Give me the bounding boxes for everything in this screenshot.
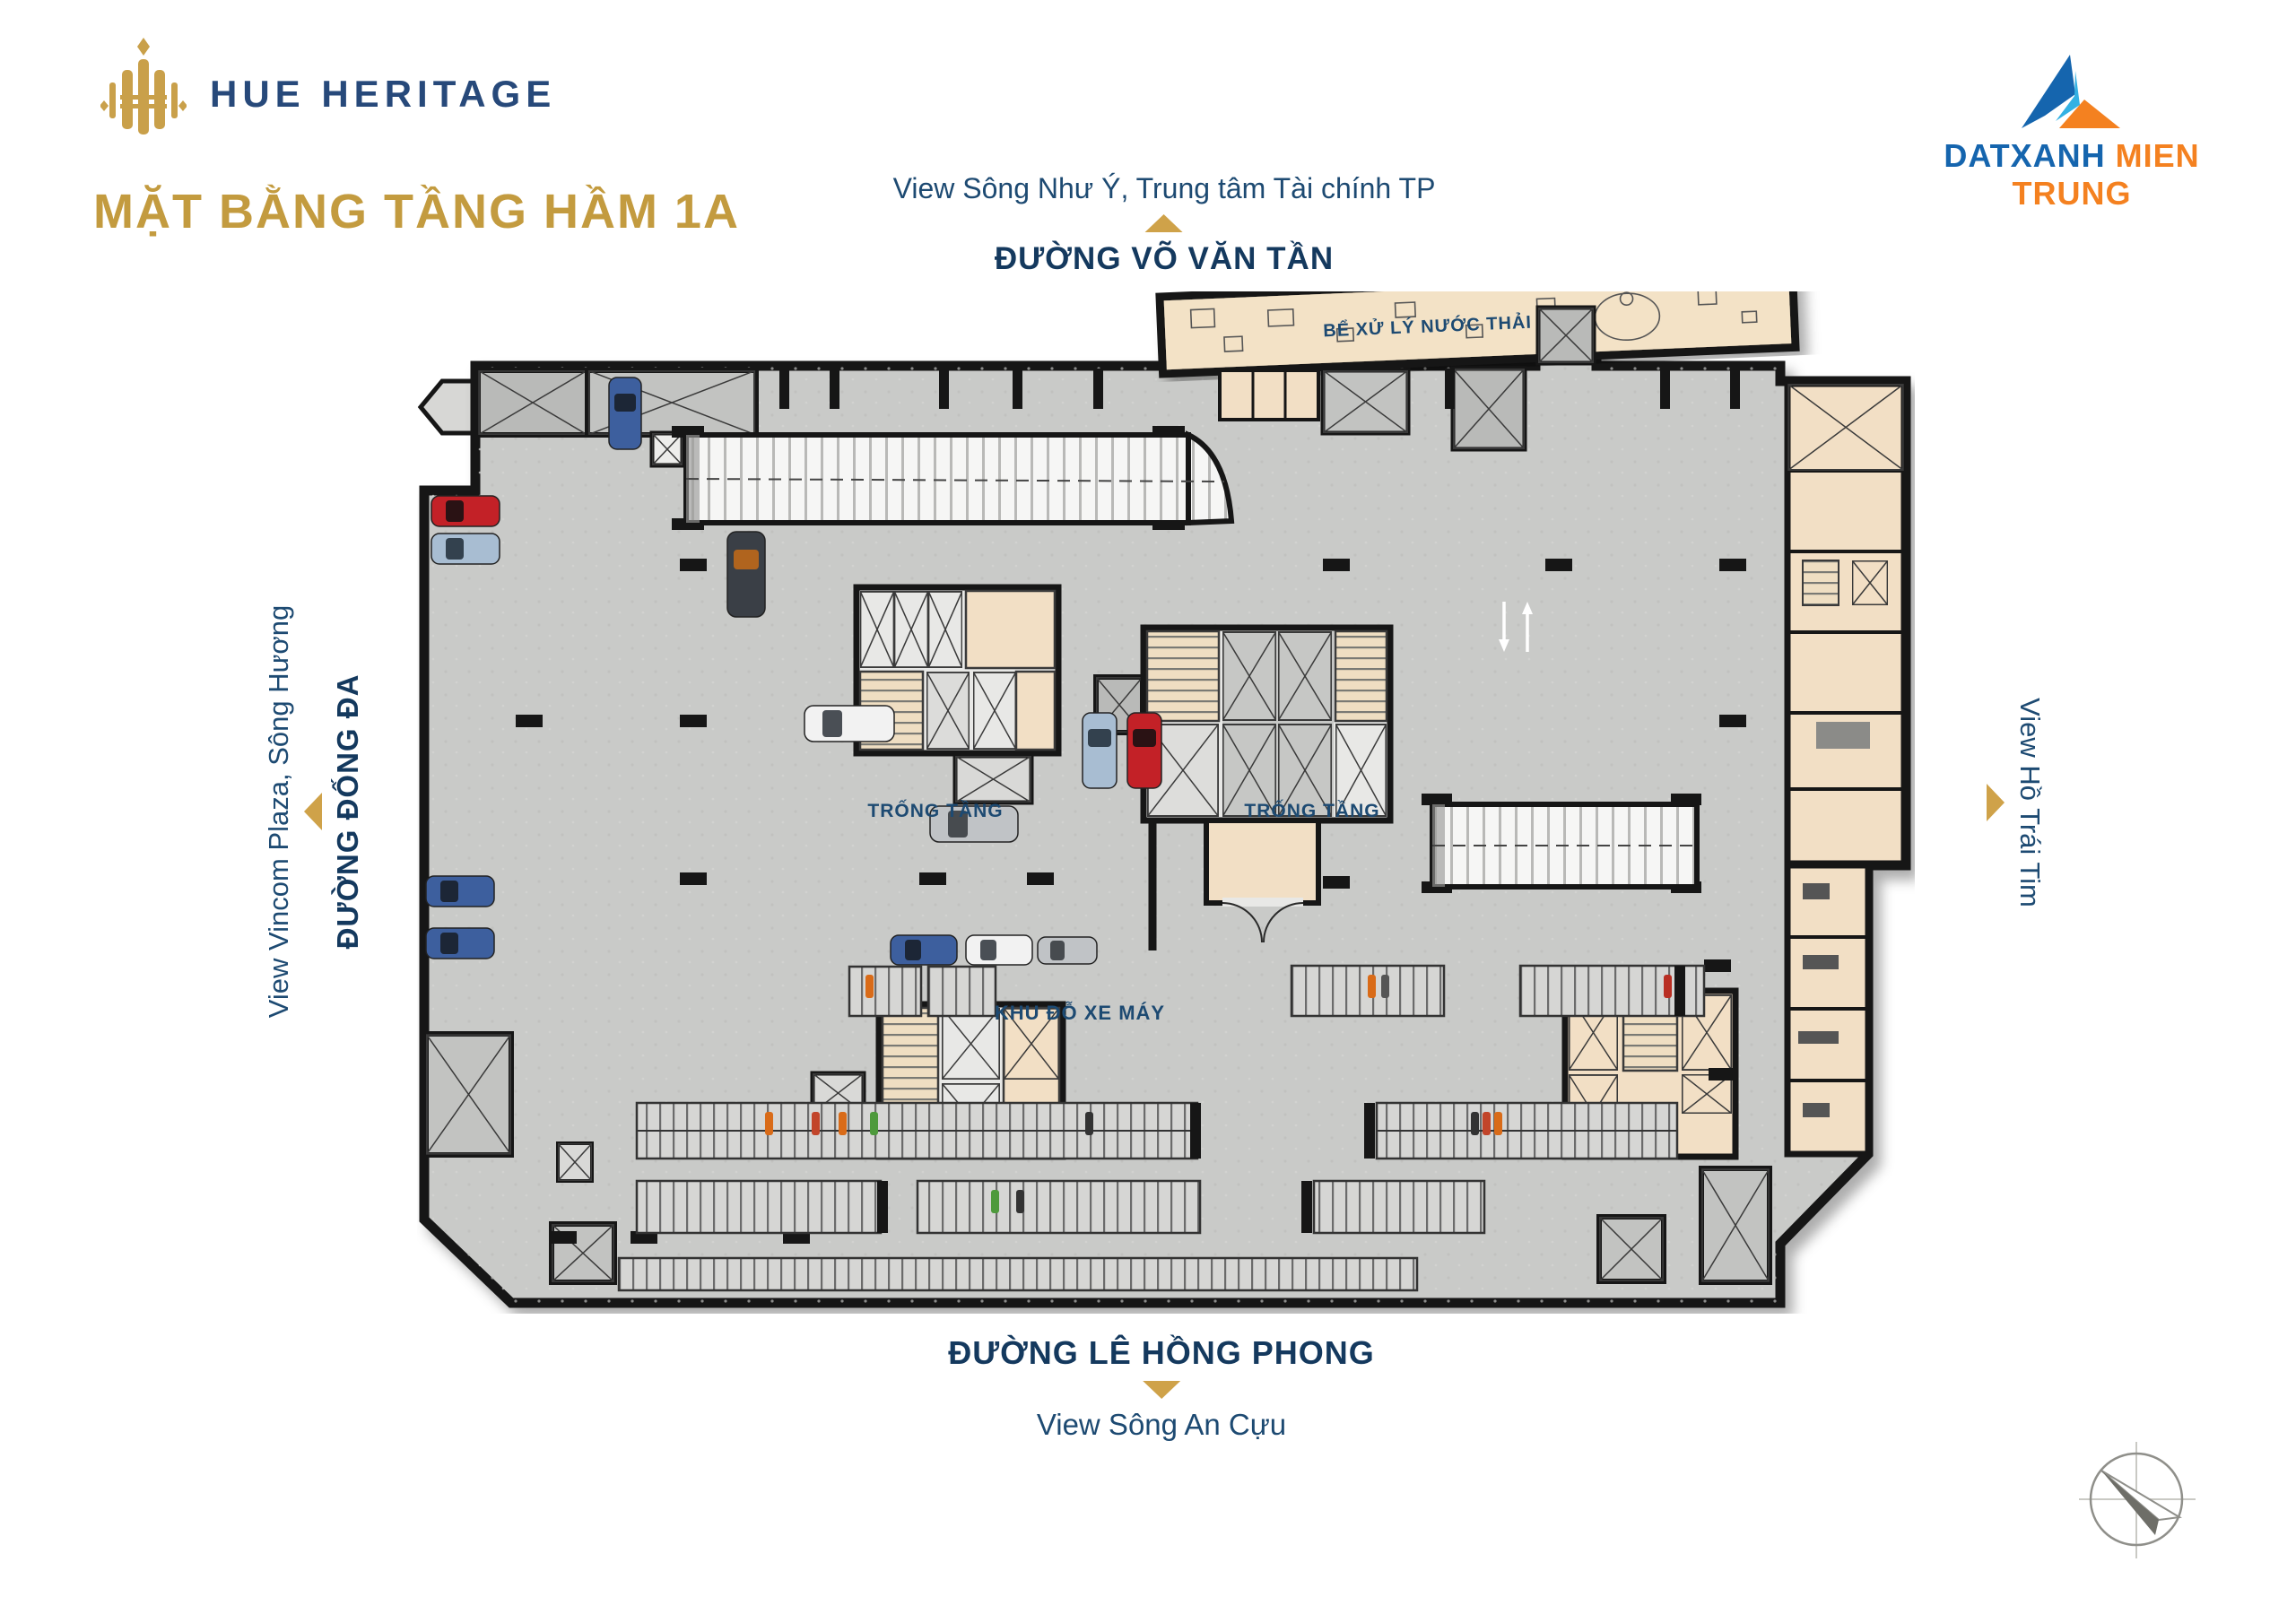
floor-plan-svg: BỂ XỬ LÝ NƯỚC THẢI: [417, 291, 1915, 1314]
motorbike-area-label: KHU ĐỖ XE MÁY: [995, 1001, 1165, 1024]
compass-icon: [2063, 1417, 2211, 1565]
developer-logo-icon: [2014, 49, 2129, 132]
right-edge-rooms: [1787, 384, 1904, 1154]
north-arrow-compass: [2063, 1417, 2211, 1569]
void-label-left: TRỐNG TẦNG: [867, 800, 1003, 821]
void-label-right: TRỐNG TẦNG: [1244, 800, 1379, 821]
left-view-label: View Vincom Plaza, Sông Hương: [263, 605, 295, 1018]
gold-triangle-left-icon: [304, 793, 322, 830]
developer-logo: DATXANH MIEN TRUNG: [1901, 49, 2242, 213]
gold-triangle-down-icon: [1143, 1381, 1180, 1399]
ramp-roof-right: [1422, 794, 1701, 893]
gold-triangle-right-icon: [1987, 784, 2005, 821]
page: { "header": { "project_name": "HUE HERIT…: [0, 0, 2296, 1623]
direction-band-top: View Sông Như Ý, Trung tâm Tài chính TP …: [893, 172, 1436, 277]
floor-plan: BỂ XỬ LÝ NƯỚC THẢI: [417, 291, 1915, 1314]
developer-name: DATXANH MIEN TRUNG: [1901, 137, 2242, 213]
project-logo: HUE HERITAGE: [100, 36, 556, 152]
project-name: HUE HERITAGE: [210, 73, 556, 116]
bottom-street-label: ĐƯỜNG LÊ HỒNG PHONG: [948, 1334, 1375, 1372]
ramp-roof-top: [672, 426, 1231, 530]
top-street-label: ĐƯỜNG VÕ VĂN TẦN: [995, 241, 1334, 277]
right-view-label: View Hồ Trái Tim: [2013, 698, 2046, 907]
gold-building-emblem-icon: [100, 36, 187, 152]
developer-name-part1: DATXANH: [1944, 137, 2105, 174]
top-view-label: View Sông Như Ý, Trung tâm Tài chính TP: [893, 172, 1436, 205]
bottom-view-label: View Sông An Cựu: [1037, 1408, 1286, 1442]
page-title: MẶT BẰNG TẦNG HẦM 1A: [93, 184, 740, 239]
direction-band-bottom: ĐƯỜNG LÊ HỒNG PHONG View Sông An Cựu: [948, 1334, 1375, 1442]
left-street-label: ĐƯỜNG ĐỐNG ĐA: [331, 674, 365, 950]
gold-triangle-up-icon: [1145, 214, 1183, 232]
entry-pentagon-top-left: [421, 381, 476, 433]
